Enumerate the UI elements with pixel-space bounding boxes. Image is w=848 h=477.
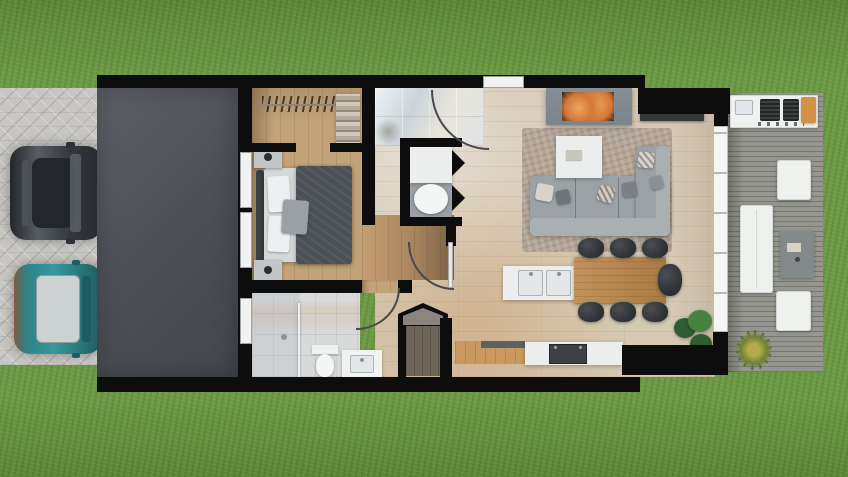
sliding-glass-door <box>713 126 728 332</box>
closet-shelf <box>336 94 360 146</box>
outdoor-chair <box>777 160 811 200</box>
washer-round <box>414 184 448 214</box>
oven-knob <box>579 346 582 349</box>
throw-pillow <box>555 189 572 206</box>
car-dark-windshield <box>70 154 81 232</box>
bedroom-window <box>240 152 252 208</box>
wall-stub <box>398 280 412 293</box>
bbq-grill-grate <box>783 99 799 121</box>
firebox <box>562 92 614 121</box>
car-mirror <box>72 260 80 265</box>
faucet <box>557 272 561 276</box>
counter-shadow <box>375 118 401 145</box>
lamp <box>264 153 272 161</box>
floor-storage-closet <box>406 326 440 376</box>
wall-storage-left <box>398 326 406 377</box>
sofa-chaise-backrest <box>656 146 670 236</box>
dining-chair-head <box>658 264 682 296</box>
deck-grass-plant <box>736 330 772 370</box>
entry-door <box>483 76 524 88</box>
oven-knob <box>554 346 557 349</box>
toilet-bowl <box>316 354 334 377</box>
bed-throw <box>281 199 309 235</box>
bathroom-window <box>240 298 252 344</box>
monstera-plant <box>688 310 712 332</box>
wall-glass-corner <box>713 330 728 347</box>
closet-rod <box>262 104 338 106</box>
car-mirror <box>72 353 80 358</box>
vanity-faucet <box>360 358 364 362</box>
sofa-backrest <box>530 218 670 236</box>
cooktop-strip <box>481 341 525 348</box>
wall-laundry-left <box>400 138 410 226</box>
wall-laundry-top <box>400 138 462 147</box>
bed-headboard <box>256 170 264 262</box>
shower-area <box>252 293 300 377</box>
faucet <box>529 272 533 276</box>
shower-glass <box>298 303 300 377</box>
lamp <box>264 266 272 274</box>
wall-bedroom-kitchen <box>362 75 375 225</box>
side-table-tray <box>787 243 801 252</box>
car-dark-roof <box>32 158 74 228</box>
floor-plan-render <box>0 0 848 477</box>
grill-knobs <box>758 122 804 126</box>
garage-roof <box>97 88 238 377</box>
sofa-seam <box>618 178 619 218</box>
car-mirror <box>66 142 75 148</box>
dining-chair <box>642 302 668 322</box>
car-teal-windshield <box>82 276 91 342</box>
shower-drain <box>281 334 287 340</box>
dining-table <box>574 257 666 304</box>
coffee-table-books <box>566 150 582 160</box>
wall-storage-right <box>440 318 452 377</box>
wall-bottom-step <box>622 345 728 375</box>
dining-chair <box>578 302 604 322</box>
outdoor-table-seam <box>756 210 757 288</box>
car-dark <box>10 146 102 240</box>
dining-chair <box>642 238 668 258</box>
wall-closet-divider <box>330 143 362 152</box>
throw-pillow <box>637 151 655 169</box>
car-mirror <box>66 238 75 244</box>
throw-pillow <box>535 183 555 203</box>
car-dark-rear-window <box>22 160 29 226</box>
wall-bottom <box>97 377 640 392</box>
wall-bed-bath <box>252 280 362 293</box>
dining-chair <box>610 302 636 322</box>
throw-pillow <box>621 181 638 198</box>
outdoor-chair <box>776 291 811 331</box>
side-table-cup <box>795 257 800 262</box>
bbq-grill-grate <box>760 99 780 121</box>
laundry-counter <box>410 147 452 183</box>
cutting-board <box>801 97 816 123</box>
bedroom-window <box>240 212 252 268</box>
dining-chair <box>578 238 604 258</box>
bedroom-door <box>448 242 453 288</box>
sofa-seam <box>575 178 576 218</box>
car-teal <box>14 264 102 354</box>
car-teal-roof <box>36 275 80 343</box>
outdoor-sink <box>735 100 753 115</box>
wall-closet-divider <box>252 143 296 152</box>
outdoor-side-table <box>780 231 814 278</box>
toilet-tank <box>312 345 338 354</box>
dining-chair <box>610 238 636 258</box>
